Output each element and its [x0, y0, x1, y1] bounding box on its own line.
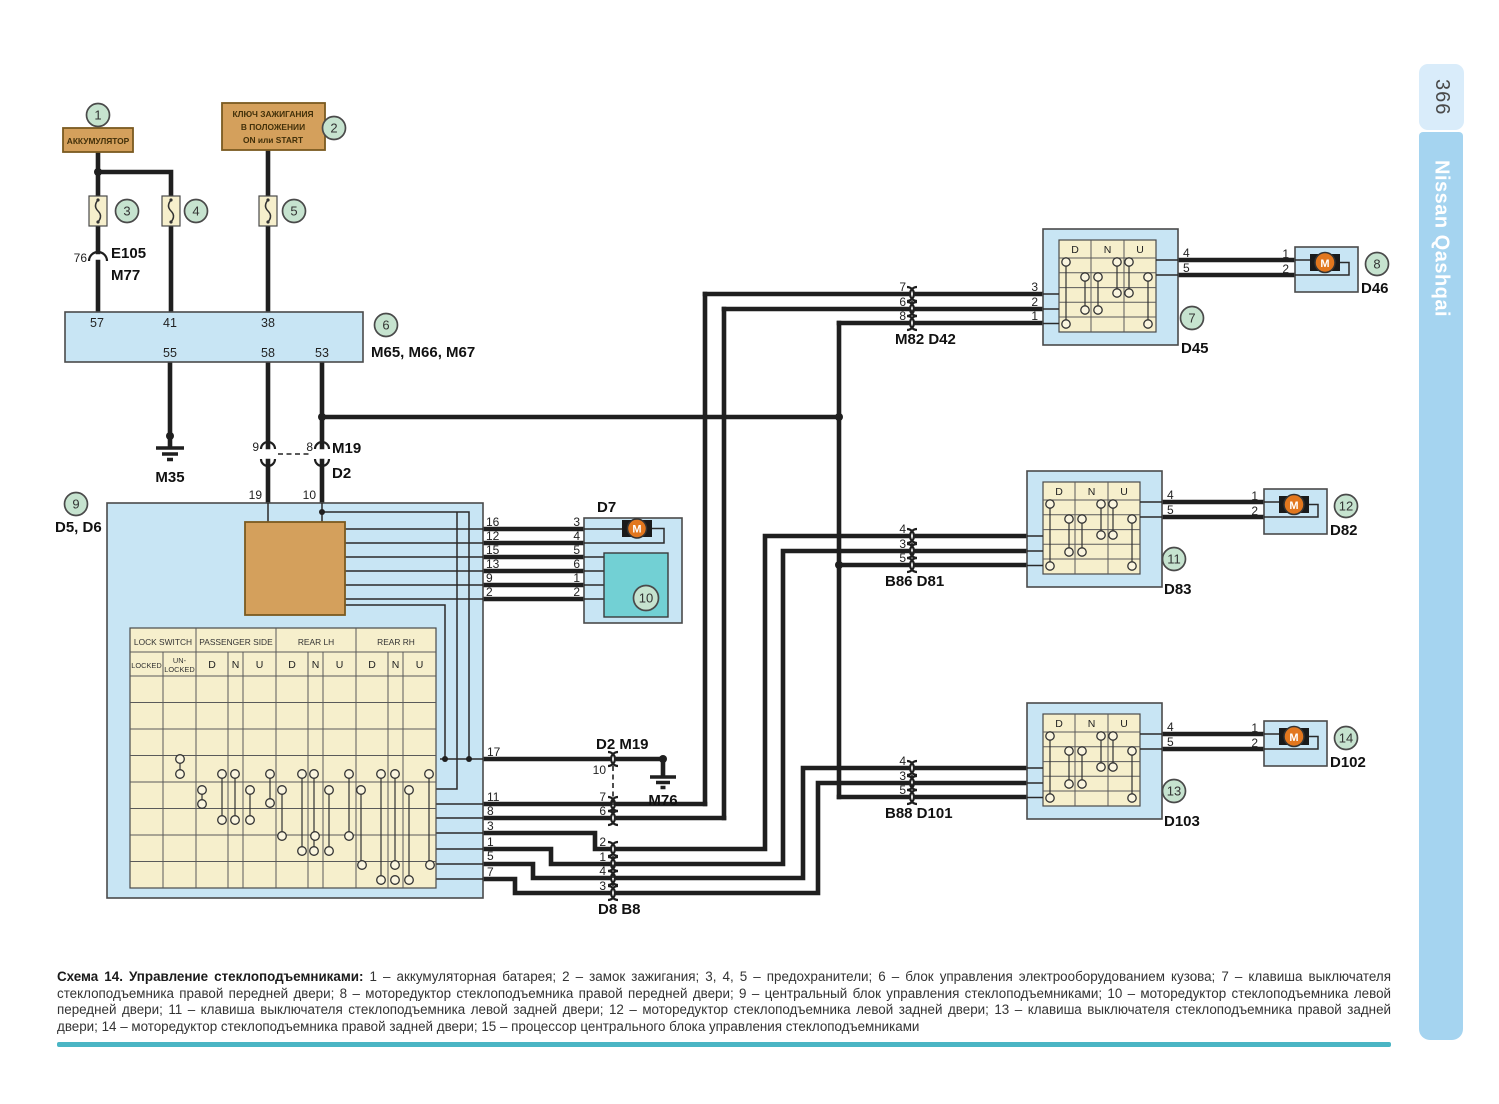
svg-text:U: U — [256, 659, 264, 671]
svg-text:2: 2 — [1031, 295, 1038, 309]
svg-text:U: U — [416, 659, 424, 671]
b86d81-label: B86 D81 — [885, 573, 944, 590]
central-window-control-block: 19 10 LOCK SWITCH PASSENGER SIDE REAR LH… — [107, 488, 501, 898]
svg-text:M: M — [1289, 500, 1298, 512]
b9-pin-11: 11 — [487, 790, 500, 804]
battery: АККУМУЛЯТОР — [63, 128, 133, 152]
svg-text:D: D — [1055, 718, 1063, 730]
svg-text:U: U — [1136, 244, 1144, 256]
svg-text:7: 7 — [899, 280, 906, 294]
d2m19-label: D2 M19 — [596, 736, 649, 753]
figure-caption: Схема 14. Управление стеклоподъемниками:… — [57, 969, 1391, 1035]
svg-text:7: 7 — [599, 790, 606, 804]
col-rear-rh: REAR RH — [377, 637, 415, 647]
svg-text:7: 7 — [1188, 311, 1195, 326]
bcm-name: M65, M66, M67 — [371, 344, 475, 361]
ignition-switch: КЛЮЧ ЗАЖИГАНИЯ В ПОЛОЖЕНИИ ON или START — [222, 103, 325, 150]
connector-b88-d101: 4 3 5 3 2 1 B88 D101 — [885, 754, 1038, 822]
ignition-line1: КЛЮЧ ЗАЖИГАНИЯ — [233, 109, 314, 119]
fuse-5 — [259, 196, 277, 226]
col-unlocked-1: UN- — [173, 656, 187, 665]
d5d6-label: D5, D6 — [55, 519, 102, 536]
svg-text:5: 5 — [1183, 261, 1190, 275]
processor-box — [245, 522, 345, 615]
svg-text:2: 2 — [1282, 262, 1289, 276]
connector-e105: 76 E105 M77 — [74, 245, 146, 284]
b9-pin-8: 8 — [487, 804, 494, 818]
svg-text:N: N — [1104, 244, 1112, 256]
m19-label: M19 — [332, 440, 361, 457]
svg-text:D: D — [1071, 244, 1079, 256]
col-unlocked-2: LOCKED — [164, 665, 194, 674]
b88d101-label: B88 D101 — [885, 805, 953, 822]
ground-m35: M35 — [155, 448, 184, 486]
fuse-4 — [162, 196, 180, 226]
svg-text:10: 10 — [593, 763, 607, 777]
ignition-line2: В ПОЛОЖЕНИИ — [241, 122, 305, 132]
e105-pin: 76 — [74, 251, 88, 265]
svg-text:U: U — [1120, 718, 1128, 730]
col-lock-switch: LOCK SWITCH — [134, 637, 192, 647]
svg-text:6: 6 — [899, 295, 906, 309]
svg-text:4: 4 — [573, 529, 580, 543]
page-number-tab: 366 — [1419, 64, 1464, 130]
svg-text:16: 16 — [486, 515, 500, 529]
svg-text:8: 8 — [1373, 257, 1380, 272]
svg-text:M: M — [1320, 258, 1329, 270]
ground-m76: M76 — [648, 777, 677, 809]
svg-text:13: 13 — [1167, 784, 1181, 799]
svg-text:D: D — [288, 659, 296, 671]
svg-text:N: N — [232, 659, 240, 671]
ignition-line3: ON или START — [243, 135, 304, 145]
svg-text:3: 3 — [1031, 280, 1038, 294]
fuse-3 — [89, 196, 107, 226]
svg-text:N: N — [1088, 486, 1096, 498]
window-logic-box — [604, 553, 668, 617]
svg-text:N: N — [1088, 718, 1096, 730]
divider-rule — [57, 1042, 1391, 1047]
bcm-pin-57: 57 — [90, 316, 104, 330]
svg-text:4: 4 — [899, 754, 906, 768]
svg-text:4: 4 — [1167, 488, 1174, 502]
motor-rear-left-d82: M 1 2 12 D82 — [1251, 489, 1357, 539]
svg-text:3: 3 — [573, 515, 580, 529]
svg-text:3: 3 — [599, 879, 606, 893]
svg-text:N: N — [312, 659, 320, 671]
svg-text:4: 4 — [599, 864, 606, 878]
motor-front-right-d46: M 1 2 8 D46 — [1282, 247, 1388, 297]
svg-text:1: 1 — [1251, 489, 1258, 503]
caption-title: Схема 14. Управление стеклоподъемниками: — [57, 969, 363, 984]
bcm-pin-55: 55 — [163, 346, 177, 360]
svg-text:5: 5 — [1167, 503, 1174, 517]
svg-text:3: 3 — [899, 769, 906, 783]
svg-text:D: D — [208, 659, 216, 671]
svg-text:5: 5 — [899, 551, 906, 565]
svg-text:N: N — [392, 659, 400, 671]
motor-rear-right-d102: M 1 2 14 D102 — [1251, 721, 1366, 771]
svg-text:U: U — [336, 659, 344, 671]
svg-text:12: 12 — [486, 529, 500, 543]
block9-pin-10: 10 — [303, 488, 317, 502]
page-number: 366 — [1430, 79, 1453, 115]
bcm-pin-41: 41 — [163, 316, 177, 330]
d46-label: D46 — [1361, 280, 1389, 297]
body-control-module: 57 41 38 55 58 53 M65, M66, M67 — [65, 312, 475, 362]
svg-text:6: 6 — [573, 557, 580, 571]
b9-pin-17: 17 — [487, 745, 501, 759]
col-rear-lh: REAR LH — [298, 637, 334, 647]
d45-label: D45 — [1181, 340, 1209, 357]
svg-text:2: 2 — [573, 585, 580, 599]
svg-text:8: 8 — [899, 309, 906, 323]
svg-text:10: 10 — [639, 591, 653, 606]
m35-label: M35 — [155, 469, 184, 486]
svg-text:5: 5 — [1167, 735, 1174, 749]
col-passenger-side: PASSENGER SIDE — [199, 637, 273, 647]
d83-label: D83 — [1164, 581, 1192, 598]
b9-pin-7: 7 — [487, 865, 494, 879]
wiring-diagram: АККУМУЛЯТОР КЛЮЧ ЗАЖИГАНИЯ В ПОЛОЖЕНИИ O… — [0, 0, 1499, 1104]
m76-label: M76 — [648, 792, 677, 809]
svg-text:14: 14 — [1339, 731, 1353, 746]
d2-label: D2 — [332, 465, 351, 482]
manual-page: АККУМУЛЯТОР КЛЮЧ ЗАЖИГАНИЯ В ПОЛОЖЕНИИ O… — [0, 0, 1499, 1104]
svg-text:1: 1 — [1251, 721, 1258, 735]
switch-state-table: LOCK SWITCH PASSENGER SIDE REAR LH REAR … — [130, 628, 436, 888]
bcm-pin-58: 58 — [261, 346, 275, 360]
svg-text:5: 5 — [290, 204, 297, 219]
svg-text:1: 1 — [94, 108, 101, 123]
svg-text:5: 5 — [573, 543, 580, 557]
svg-text:3: 3 — [123, 204, 130, 219]
d102-label: D102 — [1330, 754, 1366, 771]
svg-text:4: 4 — [1167, 720, 1174, 734]
connector-b86-d81: 4 3 5 3 2 1 B86 D81 — [885, 522, 1038, 590]
svg-text:M: M — [1289, 732, 1298, 744]
switch-front-right-d45: D N U 4 5 7 D45 — [1043, 229, 1209, 357]
svg-text:1: 1 — [599, 850, 606, 864]
d8b8-label: D8 B8 — [598, 901, 641, 918]
driver-motor-unit-d7: D7 3 4 5 6 1 2 M 10 — [573, 499, 682, 623]
connector-m82-d42: 7 6 8 3 2 1 M82 D42 — [895, 280, 1038, 348]
svg-text:1: 1 — [1282, 247, 1289, 261]
svg-text:15: 15 — [486, 543, 500, 557]
bcm-pin-53: 53 — [315, 346, 329, 360]
svg-text:4: 4 — [899, 522, 906, 536]
svg-text:4: 4 — [1183, 246, 1190, 260]
d103-label: D103 — [1164, 813, 1200, 830]
svg-text:11: 11 — [1167, 552, 1181, 567]
svg-text:2: 2 — [1251, 736, 1258, 750]
svg-text:1: 1 — [1031, 309, 1038, 323]
svg-text:6: 6 — [599, 804, 606, 818]
b9-pin-3: 3 — [487, 819, 494, 833]
d7-label: D7 — [597, 499, 616, 516]
m19-pin-8: 8 — [306, 440, 313, 454]
m82d42-label: M82 D42 — [895, 331, 956, 348]
bcm-pin-38: 38 — [261, 316, 275, 330]
brand-sidebar: Nissan Qashqai — [1419, 132, 1463, 1040]
switch-rear-left-d83: D N U 4 5 11 D83 — [1027, 471, 1192, 598]
svg-text:U: U — [1120, 486, 1128, 498]
svg-text:3: 3 — [899, 537, 906, 551]
col-locked: LOCKED — [131, 661, 161, 670]
svg-text:13: 13 — [486, 557, 500, 571]
b9-pin-1: 1 — [487, 835, 494, 849]
e105-label: E105 — [111, 245, 146, 262]
brand-title: Nissan Qashqai — [1430, 160, 1453, 317]
block9-pin-19: 19 — [249, 488, 263, 502]
battery-label: АККУМУЛЯТОР — [67, 136, 130, 146]
svg-text:D: D — [1055, 486, 1063, 498]
svg-text:D: D — [368, 659, 376, 671]
svg-text:4: 4 — [192, 204, 199, 219]
switch-rear-right-d103: D N U 4 5 13 D103 — [1027, 703, 1200, 830]
svg-text:2: 2 — [330, 121, 337, 136]
svg-text:2: 2 — [599, 835, 606, 849]
svg-text:2: 2 — [1251, 504, 1258, 518]
svg-text:5: 5 — [899, 783, 906, 797]
svg-text:9: 9 — [486, 571, 493, 585]
svg-text:6: 6 — [382, 318, 389, 333]
svg-text:1: 1 — [573, 571, 580, 585]
b9-pin-5: 5 — [487, 849, 494, 863]
svg-text:12: 12 — [1339, 499, 1353, 514]
m77-label: M77 — [111, 267, 140, 284]
svg-text:2: 2 — [486, 585, 493, 599]
m19-pin-9: 9 — [252, 440, 259, 454]
d82-label: D82 — [1330, 522, 1358, 539]
d7-motor-m: M — [632, 524, 641, 536]
svg-text:9: 9 — [72, 497, 79, 512]
